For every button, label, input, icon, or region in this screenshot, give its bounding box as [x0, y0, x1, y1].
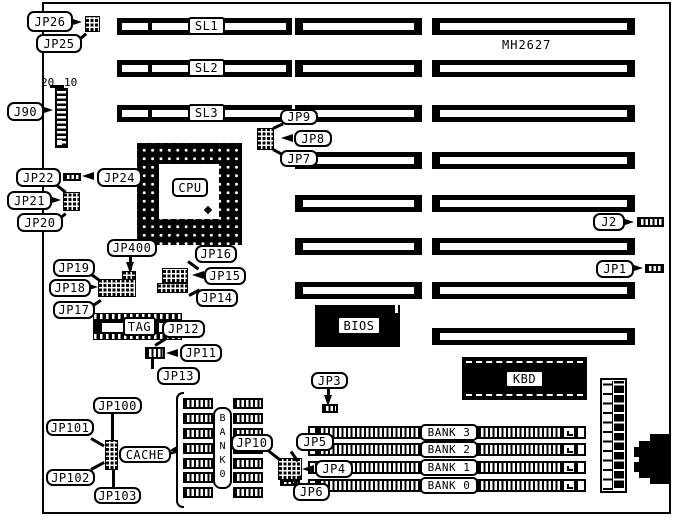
keyboard-din-connector: [634, 447, 639, 457]
cache-chip: [183, 398, 213, 409]
callout-pointer: [324, 395, 332, 406]
chip-notch: [102, 323, 124, 332]
keyboard-din-connector: [650, 434, 671, 484]
callout-jp10: JP10: [231, 434, 273, 452]
pin1-marker-icon: [204, 206, 212, 214]
callout-j90: J90: [7, 102, 44, 121]
callout-jp8: JP8: [294, 130, 332, 147]
slot-opening: [122, 23, 148, 30]
simm-socket: [477, 461, 563, 474]
simm-end-cap: [576, 426, 586, 439]
jp1-connector: [645, 264, 664, 273]
bios-chip: BIOS: [315, 305, 400, 347]
chip-dash: [466, 394, 583, 396]
callout-pointer: [82, 172, 94, 180]
callout-pointer: [126, 262, 134, 273]
cpu-socket: CPU: [137, 143, 242, 245]
callout-jp3: JP3: [311, 372, 348, 389]
simm-socket: [477, 426, 563, 439]
callout-j2: J2: [593, 213, 625, 231]
callout-jp18: JP18: [49, 279, 91, 297]
callout-pointer: [302, 465, 314, 473]
simm-end-cap: [576, 461, 586, 474]
callout-jp14: JP14: [196, 289, 238, 307]
slot-opening: [440, 110, 627, 117]
isa-slot-segment: [295, 195, 422, 212]
callout-jp13: JP13: [157, 367, 200, 385]
callout-jp26: JP26: [27, 11, 73, 32]
cache-chip: [183, 443, 213, 454]
slot-opening: [440, 65, 627, 72]
callout-jp102: JP102: [46, 469, 95, 486]
keyboard-din-connector: [639, 441, 650, 478]
kbd-chip: KBD: [462, 357, 587, 400]
isa-slot-segment: [432, 282, 635, 299]
keyboard-din-connector: [634, 462, 639, 472]
simm-latch: [562, 426, 576, 439]
isa-slot-segment: [432, 105, 635, 122]
isa-slot-segment: [295, 60, 422, 77]
simm-latch: [562, 443, 576, 456]
bios-label: BIOS: [337, 316, 381, 335]
bank2-label: BANK 2: [420, 441, 478, 458]
callout-jp101: JP101: [46, 419, 94, 436]
callout-jp7: JP7: [280, 150, 318, 167]
callout-pointer: [281, 134, 293, 142]
callout-jp4: JP4: [315, 460, 353, 478]
cache-chip: [183, 472, 213, 483]
vlb-slot-segment: SL2: [117, 60, 292, 77]
callout-pointer: [151, 359, 154, 369]
slot-label-sl2: SL2: [188, 59, 225, 77]
vlb-slot-segment: SL1: [117, 18, 292, 35]
jp100-jp103-jumper-block: [105, 440, 118, 470]
isa-slot-segment: [295, 238, 422, 255]
slot-opening: [122, 110, 148, 117]
callout-cache: CACHE: [119, 446, 171, 463]
slot-opening: [440, 243, 627, 250]
bank3-label: BANK 3: [420, 424, 478, 441]
callout-pointer: [166, 349, 178, 357]
j90-pin-line: [50, 85, 64, 88]
cpu-label: CPU: [172, 178, 208, 197]
latch-hook-icon: [567, 484, 573, 489]
callout-jp17: JP17: [53, 301, 95, 319]
isa-slot-segment: [432, 238, 635, 255]
slot-opening: [303, 110, 414, 117]
callout-jp20: JP20: [17, 213, 63, 232]
cache-chip: [233, 398, 263, 409]
jp11-jp13-jumper: [145, 347, 165, 359]
slot-label-sl1: SL1: [188, 17, 225, 35]
callout-jp11: JP11: [180, 344, 222, 362]
simm-latch: [562, 461, 576, 474]
latch-hook-icon: [567, 448, 573, 453]
j90-pin1-marker: [57, 140, 62, 145]
cache-chip: [183, 487, 213, 498]
callout-jp25: JP25: [36, 34, 82, 53]
slot-opening: [303, 157, 414, 164]
kbd-label: KBD: [505, 370, 544, 388]
isa-slot-segment: [295, 282, 422, 299]
callout-jp103: JP103: [94, 487, 141, 504]
isa-slot-segment: [432, 18, 635, 35]
slot-opening: [440, 200, 627, 207]
jp19-jp18-jp17-jumper-block: [98, 279, 136, 297]
callout-jp100: JP100: [93, 397, 142, 414]
slot-label-sl3: SL3: [188, 104, 225, 122]
cache-bank0-label: BANK0: [217, 413, 228, 483]
jp16-jp15-jumper-block: [162, 268, 188, 283]
j90-connector: [55, 88, 68, 148]
isa-slot-segment: [432, 152, 635, 169]
slot-opening: [122, 65, 148, 72]
power-connector: [600, 378, 627, 493]
jp24-jumper: [63, 173, 81, 181]
simm-socket: [477, 443, 563, 456]
callout-jp6: JP6: [293, 483, 330, 501]
chip-dash: [466, 361, 583, 363]
callout-pointer: [112, 470, 115, 488]
callout-jp21: JP21: [7, 191, 52, 210]
cache-chip: [233, 472, 263, 483]
latch-hook-icon: [567, 466, 573, 471]
simm-end-cap: [576, 479, 586, 492]
simm-socket: [477, 479, 563, 492]
slot-opening: [303, 65, 414, 72]
cache-chip: [233, 413, 263, 424]
callout-jp19: JP19: [53, 259, 95, 277]
callout-pointer: [192, 271, 204, 279]
slot-opening: [303, 243, 414, 250]
cache-chip: [183, 413, 213, 424]
slot-opening: [440, 23, 627, 30]
cache-bank0-box: BANK0: [213, 407, 232, 489]
simm-socket: [317, 479, 421, 492]
slot-opening: [440, 157, 627, 164]
tag-label: TAG: [123, 317, 156, 336]
callout-jp1: JP1: [596, 260, 634, 278]
jp14-jumper-block: [157, 283, 188, 293]
jp26-jp25-jumper-block: [85, 16, 100, 32]
slot-opening: [303, 200, 414, 207]
isa-slot-segment: [432, 60, 635, 77]
motherboard-layout-diagram: MH2627 SL1 SL2 SL3 CPU 20 10: [0, 0, 674, 520]
cache-chip: [233, 458, 263, 469]
jp9-jp8-jp7-jumper-block: [257, 128, 274, 150]
jp22-jp21-jp20-jumper-block: [63, 192, 80, 211]
cache-chip: [183, 428, 213, 439]
isa-slot-segment: [432, 195, 635, 212]
callout-jp12: JP12: [162, 320, 205, 338]
vlb-slot-segment: SL3: [117, 105, 292, 122]
slot-opening: [303, 23, 414, 30]
part-number: MH2627: [502, 38, 551, 52]
j90-pin10-label: 10: [64, 76, 77, 89]
callout-jp5: JP5: [296, 433, 334, 451]
slot-opening: [303, 287, 414, 294]
callout-pointer: [111, 413, 114, 440]
bank1-label: BANK 1: [420, 459, 478, 476]
power-connector-pins: [614, 381, 624, 490]
callout-jp22: JP22: [16, 168, 61, 187]
callout-jp24: JP24: [97, 168, 142, 187]
power-connector-pins: [603, 381, 613, 490]
cpu-socket-center: CPU: [159, 164, 219, 219]
isa-slot-segment: [295, 18, 422, 35]
j2-connector: [637, 217, 664, 227]
callout-jp15: JP15: [204, 267, 246, 285]
cache-chip: [233, 487, 263, 498]
latch-hook-icon: [567, 431, 573, 436]
isa-slot-segment: [432, 328, 635, 345]
callout-jp16: JP16: [195, 245, 237, 263]
simm-end-cap: [576, 443, 586, 456]
slot-opening: [440, 333, 627, 340]
bank0-label: BANK 0: [420, 477, 478, 494]
slot-opening: [440, 287, 627, 294]
callout-jp9: JP9: [280, 109, 318, 125]
simm-latch: [562, 479, 576, 492]
pin1-marker-icon: [395, 305, 398, 313]
cache-chip: [183, 458, 213, 469]
callout-jp400: JP400: [107, 239, 157, 257]
